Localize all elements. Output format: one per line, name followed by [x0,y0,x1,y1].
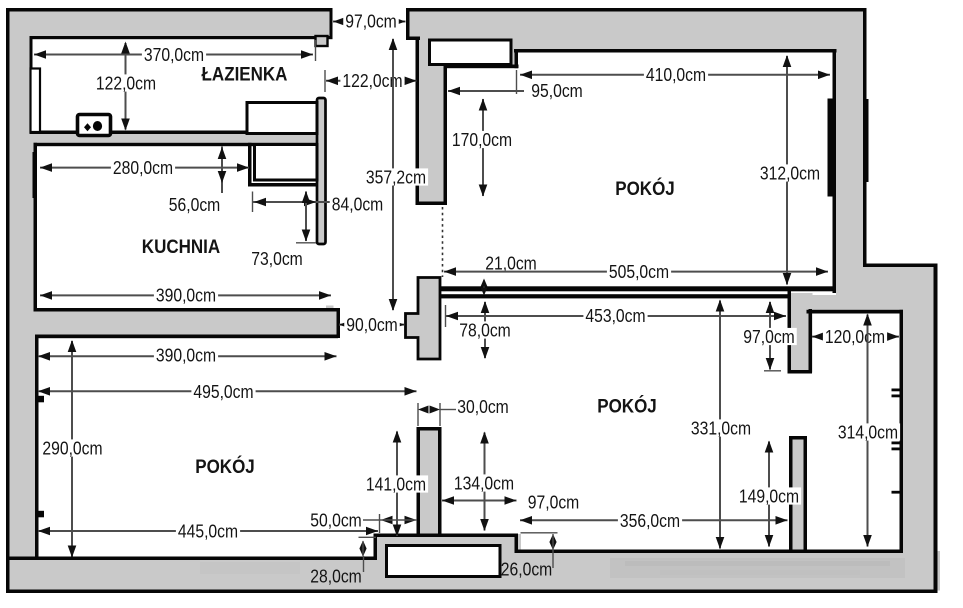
svg-text:50,0cm: 50,0cm [310,510,362,531]
svg-text:POKÓJ: POKÓJ [597,394,657,418]
svg-text:95,0cm: 95,0cm [531,80,583,101]
svg-text:97,0cm: 97,0cm [743,326,795,347]
svg-text:357,2cm: 357,2cm [366,167,426,188]
svg-text:90,0cm: 90,0cm [346,314,398,335]
svg-text:134,0cm: 134,0cm [454,473,514,494]
svg-text:30,0cm: 30,0cm [457,396,509,417]
svg-text:410,0cm: 410,0cm [646,64,706,85]
svg-text:78,0cm: 78,0cm [459,320,511,341]
svg-text:280,0cm: 280,0cm [113,157,173,178]
svg-text:POKÓJ: POKÓJ [615,176,675,200]
svg-text:290,0cm: 290,0cm [42,438,102,459]
svg-text:331,0cm: 331,0cm [691,418,751,439]
svg-text:453,0cm: 453,0cm [585,305,645,326]
svg-text:21,0cm: 21,0cm [485,253,537,274]
svg-text:97,0cm: 97,0cm [528,492,580,513]
svg-text:141,0cm: 141,0cm [366,474,426,495]
svg-text:97,0cm: 97,0cm [345,11,397,32]
svg-text:KUCHNIA: KUCHNIA [142,236,220,258]
svg-text:84,0cm: 84,0cm [332,194,384,215]
svg-text:495,0cm: 495,0cm [193,381,253,402]
svg-text:505,0cm: 505,0cm [609,261,669,282]
svg-text:73,0cm: 73,0cm [251,248,303,269]
svg-text:312,0cm: 312,0cm [760,163,820,184]
svg-text:356,0cm: 356,0cm [620,510,680,531]
svg-text:POKÓJ: POKÓJ [195,454,255,478]
svg-text:56,0cm: 56,0cm [169,194,221,215]
svg-text:445,0cm: 445,0cm [178,521,238,542]
svg-text:26,0cm: 26,0cm [501,559,553,580]
svg-text:120,0cm: 120,0cm [825,326,885,347]
svg-text:ŁAZIENKA: ŁAZIENKA [202,64,288,86]
svg-text:28,0cm: 28,0cm [310,566,362,587]
svg-text:314,0cm: 314,0cm [838,422,898,443]
svg-text:122,0cm: 122,0cm [96,73,156,94]
svg-text:170,0cm: 170,0cm [452,129,512,150]
svg-text:390,0cm: 390,0cm [156,285,216,306]
svg-text:370,0cm: 370,0cm [144,44,204,65]
svg-text:390,0cm: 390,0cm [156,344,216,365]
svg-text:149,0cm: 149,0cm [739,486,799,507]
